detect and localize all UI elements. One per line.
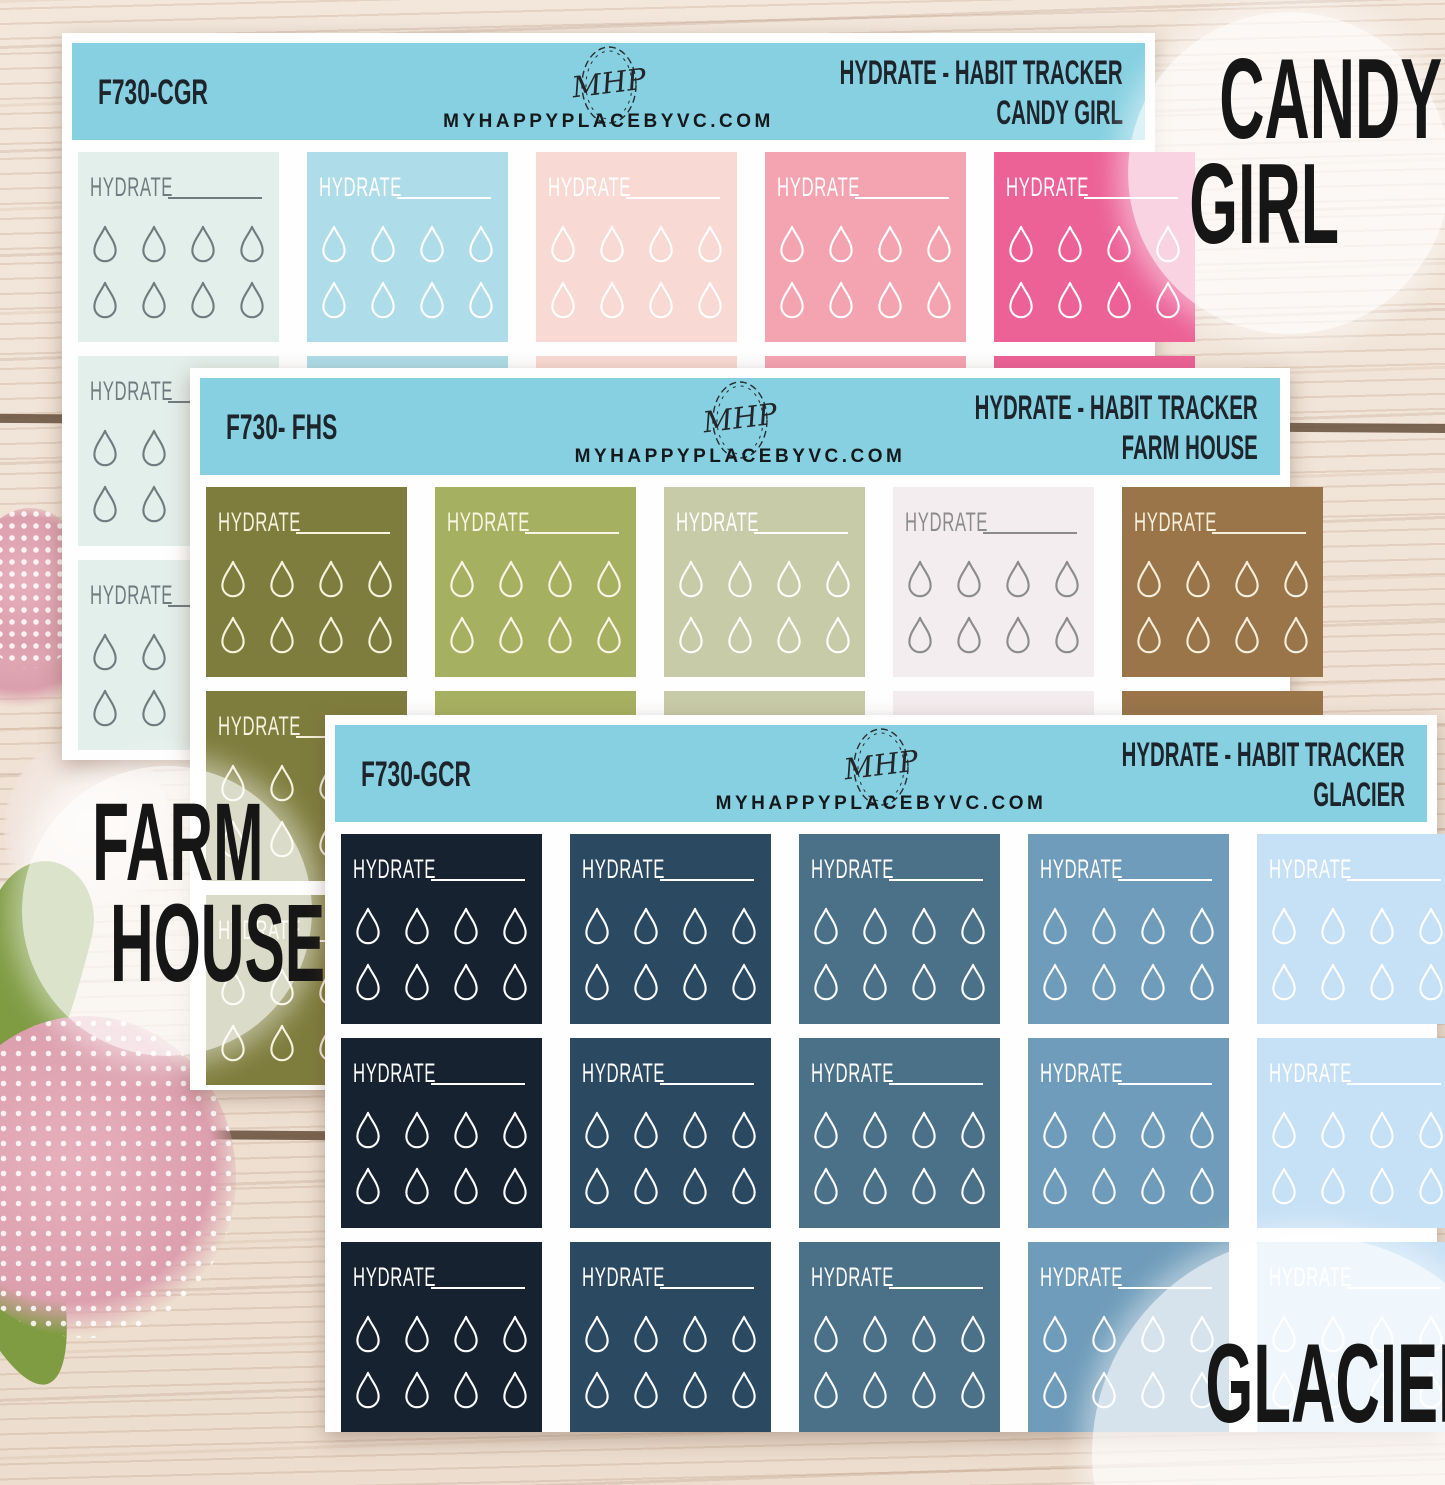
hydrate-sticker: HYDRATE <box>570 1242 771 1432</box>
overlay-circle-glacier: GLACIER <box>1092 1236 1445 1485</box>
water-drop-icon <box>451 1315 481 1355</box>
water-drop-icon <box>417 225 447 265</box>
sticker-heading: HYDRATE <box>353 854 530 885</box>
water-drop-grid <box>811 907 988 1003</box>
sticker-heading: HYDRATE <box>353 1058 530 1089</box>
water-drop-grid <box>582 907 759 1003</box>
sticker-label: HYDRATE <box>811 1058 894 1089</box>
water-drop-icon <box>353 963 383 1003</box>
hydrate-sticker: HYDRATE <box>570 1038 771 1228</box>
water-drop-icon <box>1134 560 1164 600</box>
write-in-line <box>889 1287 983 1290</box>
colorway-callout: GLACIER <box>1092 1236 1445 1435</box>
water-drop-icon <box>725 616 755 656</box>
water-drop-icon <box>1089 963 1119 1003</box>
water-drop-icon <box>402 1167 432 1207</box>
sticker-heading: HYDRATE <box>548 172 725 203</box>
water-drop-icon <box>417 281 447 321</box>
sticker-label: HYDRATE <box>1134 507 1217 538</box>
water-drop-icon <box>1055 225 1085 265</box>
write-in-line <box>660 1287 754 1290</box>
water-drop-grid <box>582 1315 759 1411</box>
water-drop-icon <box>1003 616 1033 656</box>
sheet-code-text: F730- FHS <box>226 408 337 448</box>
water-drop-icon <box>500 1167 530 1207</box>
water-drop-icon <box>548 281 578 321</box>
write-in-line <box>1212 532 1306 535</box>
water-drop-icon <box>1187 907 1217 947</box>
water-drop-grid <box>218 560 395 656</box>
sticker-heading: HYDRATE <box>218 507 395 538</box>
water-drop-icon <box>1281 560 1311 600</box>
water-drop-icon <box>1187 963 1217 1003</box>
callout-line: HOUSE <box>110 893 325 994</box>
water-drop-icon <box>1052 616 1082 656</box>
water-drop-icon <box>1055 281 1085 321</box>
water-drop-icon <box>680 1371 710 1411</box>
sticker-heading: HYDRATE <box>447 507 624 538</box>
hydrate-sticker: HYDRATE <box>341 834 542 1024</box>
water-drop-icon <box>680 1167 710 1207</box>
water-drop-icon <box>1318 1167 1348 1207</box>
sticker-label: HYDRATE <box>1269 854 1352 885</box>
water-drop-icon <box>875 225 905 265</box>
water-drop-icon <box>860 1371 890 1411</box>
water-drop-icon <box>826 281 856 321</box>
water-drop-icon <box>90 633 120 673</box>
water-drop-icon <box>466 281 496 321</box>
water-drop-icon <box>909 1167 939 1207</box>
water-drop-icon <box>496 616 526 656</box>
water-drop-icon <box>1040 1167 1070 1207</box>
hydrate-sticker: HYDRATE <box>1257 1038 1445 1228</box>
colorway-title: FARM HOUSE <box>1122 428 1258 468</box>
water-drop-icon <box>594 560 624 600</box>
water-drop-icon <box>447 616 477 656</box>
overlay-circle-candy-girl: CANDY GIRL <box>1128 12 1445 334</box>
water-drop-grid <box>1040 1111 1217 1207</box>
water-drop-grid <box>353 907 530 1003</box>
sticker-heading: HYDRATE <box>1269 1058 1445 1089</box>
write-in-line <box>1118 1083 1212 1086</box>
water-drop-icon <box>774 560 804 600</box>
water-drop-icon <box>1269 963 1299 1003</box>
water-drop-grid <box>1269 907 1445 1003</box>
sheet-titles: HYDRATE - HABIT TRACKER CANDY GIRL <box>651 53 1123 133</box>
water-drop-icon <box>924 281 954 321</box>
sticker-label: HYDRATE <box>582 854 665 885</box>
water-drop-icon <box>90 485 120 525</box>
water-drop-icon <box>451 963 481 1003</box>
water-drop-icon <box>1416 1111 1445 1151</box>
water-drop-icon <box>597 225 627 265</box>
sticker-label: HYDRATE <box>1269 1058 1352 1089</box>
water-drop-icon <box>402 963 432 1003</box>
water-drop-grid <box>1134 560 1311 656</box>
water-drop-grid <box>676 560 853 656</box>
water-drop-icon <box>353 1167 383 1207</box>
water-drop-icon <box>496 560 526 600</box>
water-drop-grid <box>811 1111 988 1207</box>
water-drop-icon <box>267 616 297 656</box>
sticker-heading: HYDRATE <box>319 172 496 203</box>
water-drop-icon <box>500 963 530 1003</box>
water-drop-icon <box>860 1315 890 1355</box>
water-drop-icon <box>139 633 169 673</box>
water-drop-icon <box>90 689 120 729</box>
water-drop-icon <box>1187 1111 1217 1151</box>
sticker-label: HYDRATE <box>1040 1058 1123 1089</box>
water-drop-icon <box>909 907 939 947</box>
hydrate-sticker: HYDRATE <box>570 834 771 1024</box>
callout-line: GLACIER <box>1205 1332 1445 1435</box>
water-drop-grid <box>353 1315 530 1411</box>
water-drop-grid <box>905 560 1082 656</box>
sticker-heading: HYDRATE <box>777 172 954 203</box>
water-drop-icon <box>909 1315 939 1355</box>
water-drop-icon <box>1006 225 1036 265</box>
sticker-heading: HYDRATE <box>811 1262 988 1293</box>
sticker-heading: HYDRATE <box>582 1262 759 1293</box>
water-drop-icon <box>218 560 248 600</box>
write-in-line <box>296 532 390 535</box>
water-drop-icon <box>958 963 988 1003</box>
sheet-titles: HYDRATE - HABIT TRACKER FARM HOUSE <box>786 388 1258 468</box>
sticker-heading: HYDRATE <box>811 854 988 885</box>
water-drop-icon <box>139 689 169 729</box>
water-drop-icon <box>368 281 398 321</box>
water-drop-icon <box>1006 281 1036 321</box>
sticker-label: HYDRATE <box>353 854 436 885</box>
water-drop-icon <box>353 1315 383 1355</box>
water-drop-icon <box>1232 616 1262 656</box>
water-drop-grid <box>811 1315 988 1411</box>
water-drop-icon <box>777 281 807 321</box>
water-drop-icon <box>1416 963 1445 1003</box>
write-in-line <box>1347 879 1441 882</box>
write-in-line <box>983 532 1077 535</box>
water-drop-icon <box>1138 1167 1168 1207</box>
water-drop-icon <box>466 225 496 265</box>
sticker-label: HYDRATE <box>1006 172 1089 203</box>
water-drop-icon <box>594 616 624 656</box>
water-drop-icon <box>1003 560 1033 600</box>
water-drop-icon <box>451 1167 481 1207</box>
sticker-heading: HYDRATE <box>811 1058 988 1089</box>
water-drop-icon <box>811 1167 841 1207</box>
sticker-label: HYDRATE <box>218 507 301 538</box>
water-drop-icon <box>402 907 432 947</box>
hydrate-sticker: HYDRATE <box>435 487 636 677</box>
sheet-code: F730- FHS <box>226 408 397 448</box>
callout-line: GIRL <box>1189 153 1339 258</box>
water-drop-icon <box>676 616 706 656</box>
write-in-line <box>431 879 525 882</box>
write-in-line <box>889 1083 983 1086</box>
sticker-label: HYDRATE <box>218 711 301 742</box>
water-drop-icon <box>1138 1111 1168 1151</box>
water-drop-icon <box>365 560 395 600</box>
hydrate-sticker: HYDRATE <box>1257 834 1445 1024</box>
water-drop-icon <box>777 225 807 265</box>
hydrate-sticker: HYDRATE <box>1028 834 1229 1024</box>
water-drop-icon <box>860 1111 890 1151</box>
sticker-label: HYDRATE <box>777 172 860 203</box>
write-in-line <box>754 532 848 535</box>
water-drop-icon <box>811 907 841 947</box>
water-drop-icon <box>1367 907 1397 947</box>
water-drop-icon <box>500 1315 530 1355</box>
sticker-heading: HYDRATE <box>1040 1058 1217 1089</box>
water-drop-grid <box>319 225 496 321</box>
water-drop-icon <box>860 907 890 947</box>
water-drop-grid <box>353 1111 530 1207</box>
hydrate-sticker: HYDRATE <box>341 1242 542 1432</box>
water-drop-icon <box>954 560 984 600</box>
water-drop-icon <box>729 1111 759 1151</box>
water-drop-icon <box>90 281 120 321</box>
water-drop-icon <box>958 907 988 947</box>
water-drop-icon <box>1089 1111 1119 1151</box>
write-in-line <box>626 197 720 200</box>
sheet-code-text: F730-CGR <box>98 73 208 113</box>
sticker-label: HYDRATE <box>582 1262 665 1293</box>
hydrate-sticker: HYDRATE <box>664 487 865 677</box>
water-drop-icon <box>1318 907 1348 947</box>
water-drop-icon <box>909 1111 939 1151</box>
sticker-heading: HYDRATE <box>1134 507 1311 538</box>
sticker-label: HYDRATE <box>676 507 759 538</box>
water-drop-icon <box>1269 1167 1299 1207</box>
water-drop-icon <box>451 1111 481 1151</box>
water-drop-icon <box>237 225 267 265</box>
water-drop-icon <box>582 1315 612 1355</box>
sheet-header-bar: F730-CGR MHP MYHAPPYPLACEBYVC.COM HYDRAT… <box>72 43 1145 140</box>
water-drop-icon <box>1089 1167 1119 1207</box>
sticker-heading: HYDRATE <box>582 854 759 885</box>
water-drop-icon <box>1318 1111 1348 1151</box>
sheet-header-bar: F730- FHS MHP MYHAPPYPLACEBYVC.COM HYDRA… <box>200 378 1280 475</box>
water-drop-icon <box>451 1371 481 1411</box>
sticker-label: HYDRATE <box>548 172 631 203</box>
write-in-line <box>660 1083 754 1086</box>
water-drop-icon <box>218 616 248 656</box>
sticker-label: HYDRATE <box>90 376 173 407</box>
water-drop-icon <box>729 1315 759 1355</box>
water-drop-icon <box>729 1167 759 1207</box>
water-drop-icon <box>811 963 841 1003</box>
water-drop-icon <box>1104 281 1134 321</box>
water-drop-icon <box>353 907 383 947</box>
water-drop-icon <box>1040 1315 1070 1355</box>
water-drop-icon <box>905 560 935 600</box>
water-drop-icon <box>811 1111 841 1151</box>
water-drop-icon <box>316 560 346 600</box>
water-drop-icon <box>646 281 676 321</box>
water-drop-icon <box>631 1167 661 1207</box>
sheet-titles: HYDRATE - HABIT TRACKER GLACIER <box>933 735 1405 815</box>
water-drop-icon <box>826 225 856 265</box>
water-drop-grid <box>777 225 954 321</box>
water-drop-icon <box>319 281 349 321</box>
water-drop-icon <box>90 429 120 469</box>
water-drop-icon <box>1040 1111 1070 1151</box>
sticker-heading: HYDRATE <box>905 507 1082 538</box>
sticker-heading: HYDRATE <box>1269 854 1445 885</box>
water-drop-icon <box>237 281 267 321</box>
hydrate-sticker: HYDRATE <box>78 152 279 342</box>
water-drop-icon <box>729 963 759 1003</box>
sticker-heading: HYDRATE <box>582 1058 759 1089</box>
product-photo-scene: F730-CGR MHP MYHAPPYPLACEBYVC.COM HYDRAT… <box>0 0 1445 1485</box>
product-title: HYDRATE - HABIT TRACKER <box>840 53 1123 93</box>
water-drop-grid <box>548 225 725 321</box>
write-in-line <box>168 197 262 200</box>
water-drop-icon <box>924 225 954 265</box>
colorway-title: GLACIER <box>1313 775 1405 815</box>
water-drop-icon <box>139 429 169 469</box>
water-drop-icon <box>680 963 710 1003</box>
sheet-code: F730-GCR <box>361 755 530 795</box>
water-drop-grid <box>90 225 267 321</box>
water-drop-icon <box>811 1371 841 1411</box>
product-title: HYDRATE - HABIT TRACKER <box>975 388 1258 428</box>
water-drop-icon <box>954 616 984 656</box>
write-in-line <box>525 532 619 535</box>
sheet-code-text: F730-GCR <box>361 755 471 795</box>
hydrate-sticker: HYDRATE <box>799 1242 1000 1432</box>
water-drop-icon <box>1183 616 1213 656</box>
water-drop-icon <box>1416 907 1445 947</box>
water-drop-icon <box>1269 1111 1299 1151</box>
water-drop-icon <box>319 225 349 265</box>
sticker-label: HYDRATE <box>90 580 173 611</box>
water-drop-icon <box>811 1315 841 1355</box>
hydrate-sticker: HYDRATE <box>341 1038 542 1228</box>
water-drop-icon <box>1183 560 1213 600</box>
water-drop-icon <box>188 225 218 265</box>
water-drop-icon <box>631 1371 661 1411</box>
write-in-line <box>660 879 754 882</box>
water-drop-icon <box>447 560 477 600</box>
water-drop-icon <box>597 281 627 321</box>
water-drop-icon <box>365 616 395 656</box>
sticker-label: HYDRATE <box>811 1262 894 1293</box>
water-drop-icon <box>729 1371 759 1411</box>
water-drop-icon <box>316 616 346 656</box>
write-in-line <box>431 1083 525 1086</box>
write-in-line <box>1118 879 1212 882</box>
water-drop-icon <box>582 907 612 947</box>
water-drop-icon <box>139 281 169 321</box>
water-drop-icon <box>368 225 398 265</box>
write-in-line <box>431 1287 525 1290</box>
write-in-line <box>1347 1083 1441 1086</box>
water-drop-icon <box>860 963 890 1003</box>
water-drop-icon <box>267 1024 297 1064</box>
water-drop-icon <box>582 963 612 1003</box>
water-drop-icon <box>680 907 710 947</box>
water-drop-icon <box>582 1371 612 1411</box>
water-drop-icon <box>402 1371 432 1411</box>
water-drop-icon <box>1134 616 1164 656</box>
water-drop-icon <box>353 1111 383 1151</box>
sticker-label: HYDRATE <box>1040 854 1123 885</box>
hydrate-sticker: HYDRATE <box>206 487 407 677</box>
hydrate-sticker: HYDRATE <box>799 834 1000 1024</box>
water-drop-icon <box>1318 963 1348 1003</box>
water-drop-icon <box>958 1315 988 1355</box>
water-drop-icon <box>958 1371 988 1411</box>
hydrate-sticker: HYDRATE <box>799 1038 1000 1228</box>
sticker-heading: HYDRATE <box>676 507 853 538</box>
water-drop-grid <box>1269 1111 1445 1207</box>
water-drop-icon <box>646 225 676 265</box>
water-drop-icon <box>774 616 804 656</box>
callout-line: FARM <box>92 792 263 893</box>
water-drop-icon <box>860 1167 890 1207</box>
water-drop-icon <box>905 616 935 656</box>
water-drop-icon <box>1269 907 1299 947</box>
hydrate-sticker: HYDRATE <box>765 152 966 342</box>
water-drop-icon <box>729 907 759 947</box>
water-drop-icon <box>875 281 905 321</box>
sticker-label: HYDRATE <box>353 1262 436 1293</box>
sheet-code: F730-CGR <box>98 73 267 113</box>
water-drop-icon <box>631 963 661 1003</box>
water-drop-icon <box>631 907 661 947</box>
sticker-label: HYDRATE <box>811 854 894 885</box>
water-drop-icon <box>353 1371 383 1411</box>
water-drop-icon <box>548 225 578 265</box>
colorway-callout: FARM HOUSE <box>22 766 312 994</box>
sticker-label: HYDRATE <box>90 172 173 203</box>
water-drop-icon <box>909 1371 939 1411</box>
write-in-line <box>889 879 983 882</box>
sheet-header-bar: F730-GCR MHP MYHAPPYPLACEBYVC.COM HYDRAT… <box>335 725 1427 822</box>
water-drop-icon <box>725 560 755 600</box>
water-drop-icon <box>909 963 939 1003</box>
water-drop-icon <box>958 1111 988 1151</box>
water-drop-icon <box>958 1167 988 1207</box>
water-drop-icon <box>500 1371 530 1411</box>
water-drop-icon <box>402 1315 432 1355</box>
water-drop-icon <box>582 1167 612 1207</box>
water-drop-icon <box>631 1315 661 1355</box>
water-drop-icon <box>1040 963 1070 1003</box>
water-drop-grid <box>582 1111 759 1207</box>
water-drop-icon <box>139 225 169 265</box>
sticker-label: HYDRATE <box>582 1058 665 1089</box>
water-drop-icon <box>500 907 530 947</box>
colorway-title: CANDY GIRL <box>996 93 1123 133</box>
water-drop-icon <box>1367 1167 1397 1207</box>
water-drop-icon <box>188 281 218 321</box>
water-drop-icon <box>1232 560 1262 600</box>
water-drop-icon <box>680 1315 710 1355</box>
water-drop-icon <box>267 560 297 600</box>
hydrate-sticker: HYDRATE <box>893 487 1094 677</box>
water-drop-icon <box>631 1111 661 1151</box>
water-drop-icon <box>500 1111 530 1151</box>
water-drop-icon <box>695 281 725 321</box>
write-in-line <box>855 197 949 200</box>
water-drop-icon <box>1052 560 1082 600</box>
water-drop-grid <box>1040 907 1217 1003</box>
water-drop-icon <box>582 1111 612 1151</box>
water-drop-icon <box>680 1111 710 1151</box>
sticker-label: HYDRATE <box>905 507 988 538</box>
